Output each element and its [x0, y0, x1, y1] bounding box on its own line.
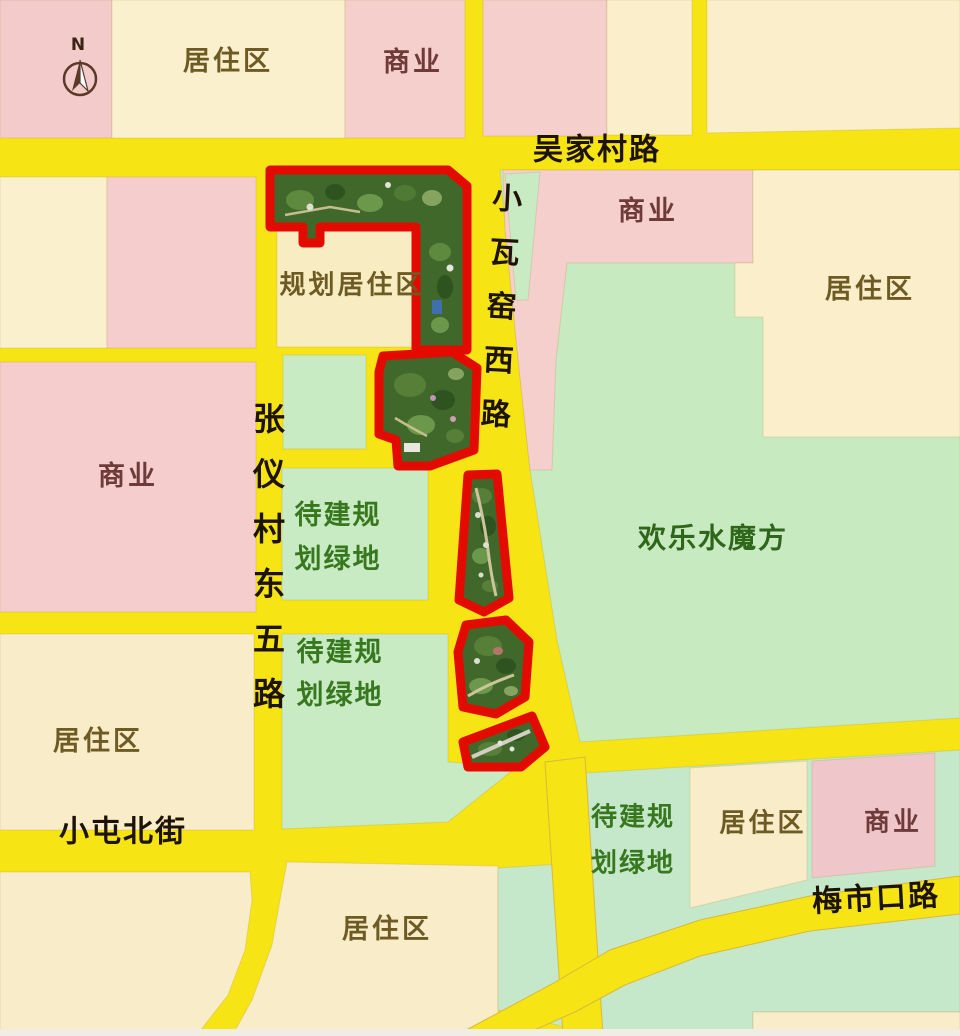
block-residential-bottom-left [0, 634, 254, 830]
block-residential-bottom-center [232, 862, 498, 1036]
block-cream-left [0, 177, 107, 348]
block-commercial-top [345, 0, 465, 138]
block-commercial-left [0, 362, 256, 612]
block-pink-top-mid [483, 0, 607, 136]
block-residential-bottom-west [0, 872, 252, 1036]
block-planned-residential [277, 228, 415, 347]
block-planned-green-1 [282, 468, 428, 600]
block-green-small [283, 355, 366, 449]
block-residential-top [112, 0, 345, 138]
block-cream-top-right [707, 0, 960, 133]
block-cream-top-mid [607, 0, 692, 135]
planning-map: N 吴家村路 小瓦窑西路 张仪村东五路 小屯北街 梅市口路 居住区 商业 商业 … [0, 0, 960, 1036]
block-pink-top-left [0, 0, 112, 138]
park-parcel-4 [458, 620, 529, 714]
block-commercial-bottom-right [812, 753, 935, 878]
compass-north-label: N [71, 35, 85, 55]
road-label-zhangyicun-east-5th: 张仪村东五路 [244, 402, 290, 732]
block-pink-left [107, 177, 256, 348]
map-bottom-edge [0, 1029, 960, 1036]
block-residential-right [735, 170, 960, 437]
park-parcel-2 [379, 352, 477, 466]
map-canvas [0, 0, 960, 1036]
